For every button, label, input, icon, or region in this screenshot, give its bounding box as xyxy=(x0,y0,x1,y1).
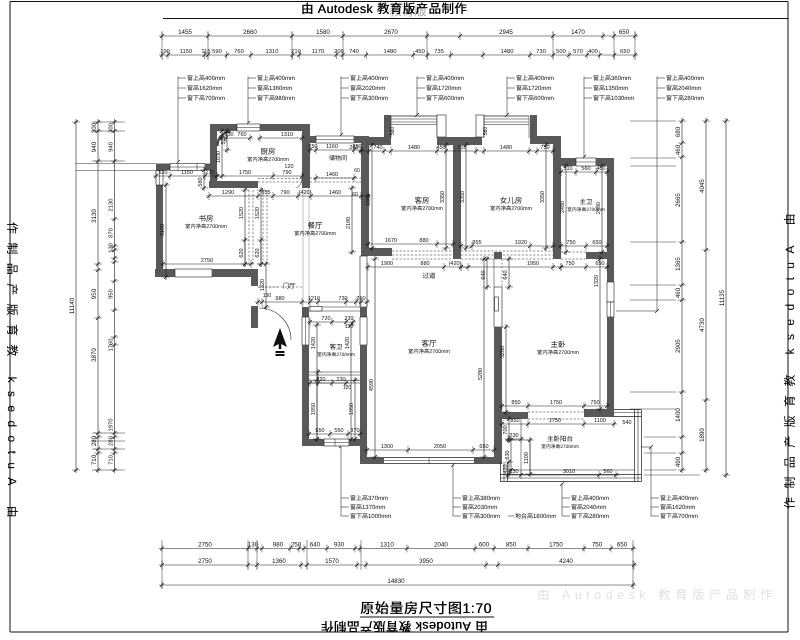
svg-text:540: 540 xyxy=(622,420,631,426)
svg-text:600: 600 xyxy=(479,542,490,549)
svg-text:880: 880 xyxy=(419,238,428,244)
svg-text:950: 950 xyxy=(91,288,98,299)
svg-text:250: 250 xyxy=(308,144,317,150)
svg-text:3350: 3350 xyxy=(540,191,546,203)
svg-text:710: 710 xyxy=(109,455,115,465)
svg-text:300: 300 xyxy=(91,122,98,133)
svg-text:190: 190 xyxy=(160,49,170,55)
svg-text:950: 950 xyxy=(109,289,115,299)
svg-text:1360: 1360 xyxy=(272,558,286,565)
svg-text:2945: 2945 xyxy=(499,29,513,36)
svg-text:640: 640 xyxy=(310,542,321,549)
svg-text:1455: 1455 xyxy=(178,29,192,36)
svg-text:120: 120 xyxy=(284,164,293,170)
svg-text:560: 560 xyxy=(603,469,612,475)
svg-text:1950: 1950 xyxy=(349,403,355,415)
svg-text:790: 790 xyxy=(280,190,289,196)
svg-text:3870: 3870 xyxy=(91,348,98,362)
svg-text:(420): (420) xyxy=(449,261,462,267)
svg-text:560: 560 xyxy=(581,166,590,172)
svg-text:700: 700 xyxy=(503,425,509,434)
svg-text:790: 790 xyxy=(282,170,291,176)
svg-text:1480: 1480 xyxy=(501,49,514,55)
svg-text:520: 520 xyxy=(221,135,227,144)
svg-text:2190: 2190 xyxy=(346,217,352,229)
svg-text:1900: 1900 xyxy=(381,261,393,267)
svg-text:(420): (420) xyxy=(299,190,312,196)
svg-text:3350: 3350 xyxy=(366,194,372,206)
svg-text:1480: 1480 xyxy=(384,49,397,55)
svg-text:1150: 1150 xyxy=(180,49,192,55)
svg-text:1400: 1400 xyxy=(675,408,682,422)
svg-text:2750: 2750 xyxy=(198,542,212,549)
svg-text:980: 980 xyxy=(273,542,284,549)
svg-text:60: 60 xyxy=(352,192,358,198)
svg-text:1580: 1580 xyxy=(316,29,330,36)
svg-text:4730: 4730 xyxy=(699,318,706,332)
svg-text:750: 750 xyxy=(592,542,603,549)
svg-text:1890: 1890 xyxy=(699,428,706,442)
svg-text:760: 760 xyxy=(234,49,244,55)
svg-text:420: 420 xyxy=(503,464,509,473)
svg-text:1750: 1750 xyxy=(549,542,563,549)
svg-text:1320: 1320 xyxy=(260,279,266,291)
svg-text:760: 760 xyxy=(237,132,246,138)
svg-text:630: 630 xyxy=(505,450,511,459)
svg-text:750: 750 xyxy=(590,400,599,406)
svg-text:3100: 3100 xyxy=(160,224,166,236)
svg-text:1460: 1460 xyxy=(329,190,341,196)
svg-text:1030: 1030 xyxy=(216,151,222,163)
svg-text:2480: 2480 xyxy=(596,202,602,214)
svg-text:1750: 1750 xyxy=(550,400,562,406)
svg-text:210: 210 xyxy=(291,49,301,55)
svg-text:1750: 1750 xyxy=(549,418,561,424)
svg-text:1670: 1670 xyxy=(385,238,397,244)
svg-text:500: 500 xyxy=(556,49,566,55)
svg-text:1750: 1750 xyxy=(239,170,251,176)
svg-text:740: 740 xyxy=(373,145,382,151)
svg-text:640: 640 xyxy=(481,270,487,279)
svg-text:855: 855 xyxy=(472,240,481,246)
svg-text:1320: 1320 xyxy=(594,275,600,287)
svg-text:580: 580 xyxy=(390,127,396,136)
svg-text:2750: 2750 xyxy=(198,558,212,565)
svg-text:1480: 1480 xyxy=(500,145,512,151)
svg-text:14830: 14830 xyxy=(387,578,405,585)
svg-text:1420: 1420 xyxy=(345,337,351,349)
svg-text:200: 200 xyxy=(334,49,344,55)
svg-text:870: 870 xyxy=(109,228,115,238)
svg-text:1950: 1950 xyxy=(311,403,317,415)
svg-text:2670: 2670 xyxy=(384,29,398,36)
svg-text:230: 230 xyxy=(336,377,345,383)
svg-text:880: 880 xyxy=(420,261,429,267)
svg-text:1150: 1150 xyxy=(181,170,193,176)
svg-text:2040: 2040 xyxy=(434,542,448,549)
svg-text:590: 590 xyxy=(212,49,222,55)
svg-text:230: 230 xyxy=(509,469,518,475)
svg-text:11135: 11135 xyxy=(719,289,726,306)
svg-text:250: 250 xyxy=(291,542,302,549)
svg-text:1570: 1570 xyxy=(325,558,339,565)
svg-text:60: 60 xyxy=(354,168,360,174)
svg-text:1310: 1310 xyxy=(266,49,279,55)
svg-text:250: 250 xyxy=(356,296,365,302)
svg-text:1520: 1520 xyxy=(239,207,245,219)
svg-text:2750: 2750 xyxy=(201,258,213,264)
svg-text:1300: 1300 xyxy=(381,444,393,450)
svg-text:5280: 5280 xyxy=(478,368,484,380)
svg-text:940: 940 xyxy=(109,142,115,152)
svg-text:650: 650 xyxy=(617,542,628,549)
svg-text:130: 130 xyxy=(109,243,115,253)
svg-text:1365: 1365 xyxy=(675,257,682,271)
svg-text:230: 230 xyxy=(344,316,353,322)
svg-text:940: 940 xyxy=(91,141,98,152)
svg-text:3260: 3260 xyxy=(500,346,506,358)
svg-text:570: 570 xyxy=(573,49,583,55)
svg-text:1460: 1460 xyxy=(326,172,338,178)
svg-text:730: 730 xyxy=(338,296,347,302)
svg-text:400: 400 xyxy=(588,49,598,55)
svg-text:2905: 2905 xyxy=(675,339,682,353)
svg-text:2480: 2480 xyxy=(560,201,566,213)
svg-text:750: 750 xyxy=(565,261,574,267)
svg-text:2050: 2050 xyxy=(434,444,446,450)
svg-text:280: 280 xyxy=(91,435,98,446)
svg-text:850: 850 xyxy=(511,400,520,406)
svg-text:1920: 1920 xyxy=(515,240,527,246)
svg-text:120: 120 xyxy=(343,385,352,391)
svg-text:370: 370 xyxy=(350,428,359,434)
svg-text:580: 580 xyxy=(198,177,204,186)
svg-text:4240: 4240 xyxy=(559,558,573,565)
svg-text:460: 460 xyxy=(675,144,682,155)
svg-text:980: 980 xyxy=(275,296,284,302)
svg-text:300: 300 xyxy=(109,123,115,133)
svg-text:11140: 11140 xyxy=(69,297,76,314)
svg-text:4590: 4590 xyxy=(369,379,375,391)
svg-text:1760: 1760 xyxy=(109,339,115,352)
svg-text:750: 750 xyxy=(566,240,575,246)
svg-text:3010: 3010 xyxy=(563,469,575,475)
svg-text:1170: 1170 xyxy=(312,49,324,55)
svg-text:650: 650 xyxy=(592,240,601,246)
svg-text:735: 735 xyxy=(434,49,444,55)
svg-text:655: 655 xyxy=(261,190,270,196)
svg-text:1100: 1100 xyxy=(524,452,530,464)
svg-text:450: 450 xyxy=(436,145,445,151)
svg-text:1470: 1470 xyxy=(571,29,585,36)
svg-text:1310: 1310 xyxy=(380,542,394,549)
svg-text:1210: 1210 xyxy=(308,296,320,302)
svg-text:620: 620 xyxy=(255,248,261,257)
svg-text:1480: 1480 xyxy=(408,145,420,151)
svg-text:850: 850 xyxy=(506,542,517,549)
svg-text:130: 130 xyxy=(263,293,272,299)
svg-text:250: 250 xyxy=(349,145,358,151)
svg-text:650: 650 xyxy=(620,49,630,55)
svg-text:1950: 1950 xyxy=(527,261,539,267)
svg-text:720: 720 xyxy=(316,377,325,383)
svg-text:720: 720 xyxy=(321,316,330,322)
svg-text:490: 490 xyxy=(675,456,682,467)
svg-text:3350: 3350 xyxy=(440,191,446,203)
svg-text:2660: 2660 xyxy=(243,29,257,36)
svg-text:2130: 2130 xyxy=(109,199,115,212)
svg-text:550: 550 xyxy=(334,428,343,434)
svg-text:650: 650 xyxy=(315,428,324,434)
svg-text:450: 450 xyxy=(415,49,425,55)
svg-text:710: 710 xyxy=(91,454,98,465)
svg-text:1420: 1420 xyxy=(311,337,317,349)
svg-text:1520: 1520 xyxy=(255,207,261,219)
svg-text:740: 740 xyxy=(349,49,359,55)
svg-text:2665: 2665 xyxy=(675,193,682,207)
svg-text:520: 520 xyxy=(158,170,167,176)
svg-text:130: 130 xyxy=(205,170,214,176)
svg-text:1290: 1290 xyxy=(222,190,234,196)
svg-text:1310: 1310 xyxy=(281,132,293,138)
svg-text:640: 640 xyxy=(503,270,509,279)
svg-text:3950: 3950 xyxy=(419,558,433,565)
svg-text:1970: 1970 xyxy=(109,419,115,432)
svg-text:1160: 1160 xyxy=(326,144,338,150)
svg-text:620: 620 xyxy=(239,248,245,257)
svg-text:730: 730 xyxy=(536,49,546,55)
svg-text:3350: 3350 xyxy=(460,191,466,203)
svg-text:115: 115 xyxy=(201,49,210,55)
svg-text:460: 460 xyxy=(675,287,682,298)
svg-text:1100: 1100 xyxy=(594,418,606,424)
svg-text:3130: 3130 xyxy=(91,209,98,223)
svg-text:930: 930 xyxy=(334,542,345,549)
svg-text:4045: 4045 xyxy=(699,179,706,193)
svg-text:680: 680 xyxy=(675,126,682,137)
svg-text:650: 650 xyxy=(619,29,630,36)
